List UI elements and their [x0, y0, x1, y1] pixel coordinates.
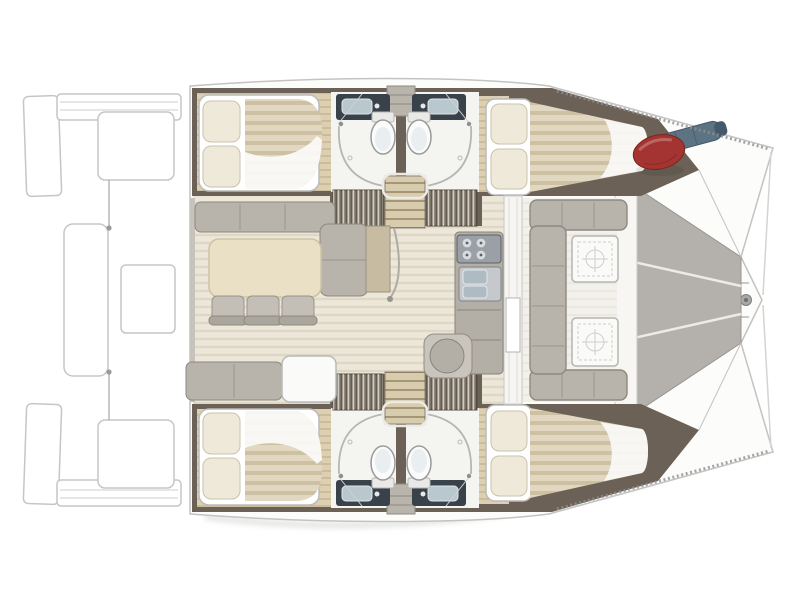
faucet: [375, 104, 380, 109]
faucet: [421, 492, 426, 497]
wardrobe-ribs: [333, 374, 383, 410]
dining-table: [209, 239, 321, 297]
shower-head: [339, 122, 343, 126]
cockpit-bulkhead: [504, 196, 522, 404]
stair-treads: [385, 372, 425, 424]
galley-basin: [463, 286, 487, 298]
shower-head: [467, 474, 471, 478]
anchor-furler-pin: [744, 298, 748, 302]
rail-post: [387, 296, 393, 302]
sink-basin: [428, 486, 458, 501]
wardrobe-ribs: [427, 374, 477, 410]
pillow: [203, 146, 240, 187]
stern-platforms: [23, 94, 181, 506]
shower-head: [467, 122, 471, 126]
stair-treads: [385, 176, 425, 228]
sliding-door: [506, 298, 520, 352]
burner-cap: [480, 254, 483, 257]
pillow: [203, 413, 240, 454]
starboard-transom-platform: [23, 403, 61, 504]
sink-basin: [342, 486, 372, 501]
galley-basin: [463, 270, 487, 284]
toilet-seat: [411, 127, 427, 151]
saloon-sofa-top: [195, 202, 335, 232]
starboard-aft-deck: [98, 420, 174, 488]
toilet-seat: [375, 449, 391, 473]
side-console: [366, 226, 390, 292]
aft-gangway: [121, 265, 175, 333]
faucet: [421, 104, 426, 109]
burner-cap: [466, 254, 469, 257]
port-transom-platform: [23, 95, 61, 196]
chair-back: [209, 316, 247, 325]
pillow: [203, 101, 240, 142]
wardrobe-ribs: [333, 190, 383, 226]
port-aft-deck: [98, 112, 174, 180]
sink-basin: [342, 99, 372, 114]
forward-cockpit: [522, 198, 627, 402]
pillow: [491, 149, 527, 189]
center-aft-platform: [64, 224, 108, 376]
burner-cap: [466, 242, 469, 245]
chair-back: [244, 316, 282, 325]
cleat-dot: [106, 225, 111, 230]
cockpit-bench-back: [530, 226, 566, 374]
toilet-seat: [411, 449, 427, 473]
chart-table: [282, 356, 336, 402]
floor-plan-canvas: [0, 0, 800, 600]
pillow: [203, 458, 240, 499]
cleat-dot: [106, 369, 111, 374]
wardrobe-ribs: [427, 190, 477, 226]
shower-head: [339, 474, 343, 478]
sink-basin: [428, 99, 458, 114]
toilet-seat: [375, 127, 391, 151]
burner-cap: [480, 242, 483, 245]
faucet: [375, 492, 380, 497]
dining-chairs: [209, 296, 317, 325]
pillow: [491, 104, 527, 144]
catamaran-floor-plan: [0, 0, 800, 600]
pillow: [491, 456, 527, 496]
chair-back: [279, 316, 317, 325]
galley-island-top: [430, 339, 464, 373]
pillow: [491, 411, 527, 451]
